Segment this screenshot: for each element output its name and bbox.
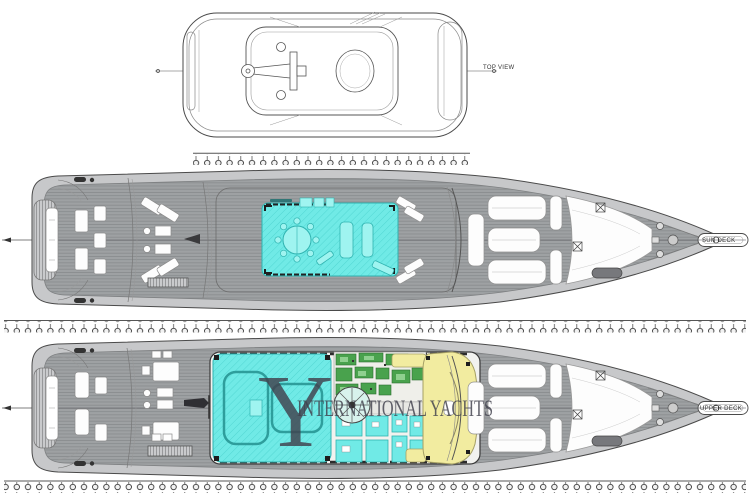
yacht-deck-plan-drawing: TOP VIEW (0, 0, 750, 494)
yacht-plan-sheet: TOP VIEW (0, 0, 750, 494)
sun-deck-view: SUN DECK (2, 169, 748, 310)
sun-deck-lounge-zone (262, 198, 398, 276)
fender-strip-upper-bottom (4, 481, 746, 493)
sideboard (148, 446, 192, 456)
round-dining-table (275, 218, 319, 262)
upper-deck-view: UPPER DECK Y INTERNATIONAL YACHTS (2, 337, 748, 478)
upper-deck-label: UPPER DECK (700, 406, 742, 412)
micro-label-smudge (270, 199, 292, 202)
superstructure (246, 27, 398, 115)
sun-deck-label: SUN DECK (702, 238, 735, 244)
aft-grill (148, 278, 188, 287)
top-view: TOP VIEW (155, 12, 515, 137)
radome (336, 50, 374, 92)
top-view-label: TOP VIEW (483, 65, 515, 71)
watermark-text: INTERNATIONAL YACHTS (297, 396, 493, 421)
fender-strip-sun-deck (193, 153, 470, 165)
fender-strip-upper-top (4, 321, 746, 333)
